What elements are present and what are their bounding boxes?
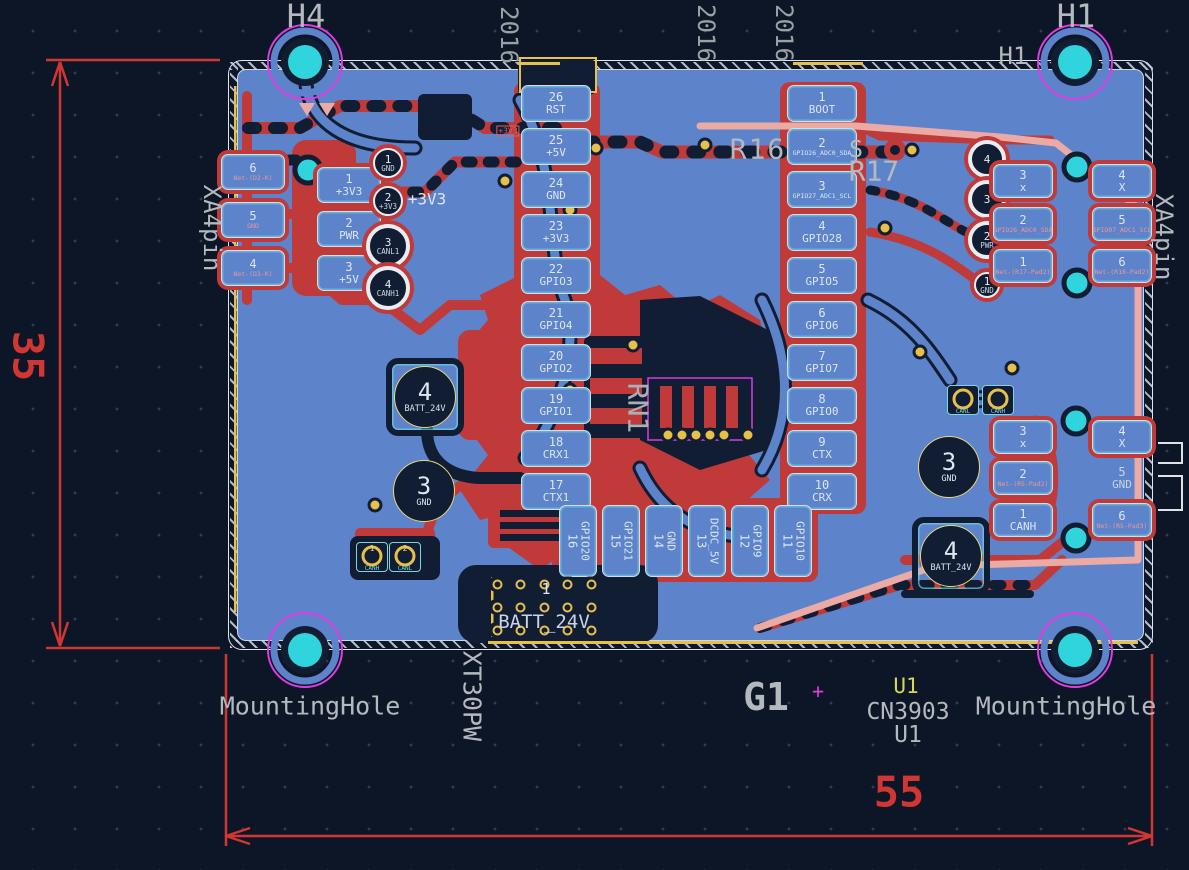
pin-pad-left-20[interactable]: 20GPIO2 xyxy=(521,344,591,381)
pad-net: GPIO26_ADC0_SDA xyxy=(994,227,1053,234)
ref-g1: G1 xyxy=(743,675,789,719)
silk-label-2016-c: 2016 xyxy=(770,4,798,62)
pin-pad-vertical-text: GND14 xyxy=(652,507,677,575)
br-conn-mid-pad-1[interactable]: 1CANH xyxy=(993,503,1053,537)
pad-net: CANH1 xyxy=(377,290,400,298)
pad-number: 3 xyxy=(984,194,991,205)
pin-name: GPIO0 xyxy=(805,406,838,418)
pin-pad-right-4[interactable]: 4GPIO28 xyxy=(787,214,857,251)
pad-number: 1 xyxy=(1019,508,1026,521)
pad-net: x xyxy=(1020,438,1027,450)
br-conn-outer-pad-6[interactable]: 6Net-(R5-Pad3) xyxy=(1092,503,1152,537)
pin-pad-vertical-text: GPIO1011 xyxy=(781,507,806,575)
pad-net: Net-(D2-K) xyxy=(233,175,272,182)
pad-net: GND xyxy=(381,165,395,173)
left-conn-th-pad-4[interactable]: 4CANH1 xyxy=(366,266,410,310)
pin-name: CRX1 xyxy=(543,449,570,461)
pad-number: 3 xyxy=(942,450,956,474)
br-conn-mid-pad-3[interactable]: 3x xyxy=(993,420,1053,454)
pin-name: GPIO20 xyxy=(579,521,591,561)
batt-conn-name: BATT_24V xyxy=(498,611,590,633)
can-pad-CANL[interactable]: 2CANL xyxy=(389,542,421,572)
edge-bracket xyxy=(1158,443,1182,510)
pad-net: Net-(R17-Pad2) xyxy=(996,269,1051,276)
pad-net: Net-(D3-K) xyxy=(233,271,272,278)
pin-number: 19 xyxy=(549,393,563,406)
big-pad-batt_24v[interactable]: 4BATT_24V xyxy=(920,525,982,587)
pad-net: GND xyxy=(247,223,259,230)
pin-name: +3V3 xyxy=(543,233,570,245)
pin-pad-bottom-12[interactable]: GPIO912 xyxy=(731,505,769,577)
right-conn-outer-pad-4[interactable]: 4X xyxy=(1092,164,1152,198)
pad-net: Net-(R5-Pad3) xyxy=(1097,523,1148,530)
pin-number: 8 xyxy=(818,393,825,406)
pin-pad-right-1[interactable]: 1BOOT xyxy=(787,85,857,122)
pin-name: GND xyxy=(665,531,677,551)
pad-number: 3 xyxy=(385,237,392,248)
pin-name: GPIO28 xyxy=(802,233,842,245)
pin-number: 2 xyxy=(818,137,825,150)
left-conn-th-pad-1[interactable]: 1GND xyxy=(373,148,403,178)
pin-pad-left-19[interactable]: 19GPIO1 xyxy=(521,387,591,424)
pin-number: 9 xyxy=(818,436,825,449)
pin-pad-vertical-text: GPIO2016 xyxy=(566,507,591,575)
pad-number: 1 xyxy=(984,276,991,287)
ref-rn1: RN1 xyxy=(622,383,655,434)
pin-number: 14 xyxy=(652,534,665,548)
pin-pad-right-9[interactable]: 9CTX xyxy=(787,430,857,467)
pin-name: GPIO7 xyxy=(805,363,838,375)
pin-name: GPIO10 xyxy=(794,521,806,561)
big-pad-gnd[interactable]: 3GND xyxy=(393,460,455,522)
pin-name: GPIO26_ADC0_SDA xyxy=(793,150,852,157)
left-conn-edge-pad-4[interactable]: 4Net-(D3-K) xyxy=(221,250,285,286)
big-pad-batt_24v[interactable]: 4BATT_24V xyxy=(394,366,456,428)
pad-number: 4 xyxy=(1118,169,1125,182)
pin-pad-left-18[interactable]: 18CRX1 xyxy=(521,430,591,467)
br-conn-mid-pad-2[interactable]: 2Net-(R5-Pad2) xyxy=(993,461,1053,495)
pin-number: 18 xyxy=(549,436,563,449)
pad-number: 3 xyxy=(1019,425,1026,438)
pin-name: RST xyxy=(546,104,566,116)
pad-number: 4 xyxy=(944,539,958,563)
right-conn-mid-pad-1[interactable]: 1Net-(R17-Pad2) xyxy=(993,249,1053,283)
pad-number: 1 xyxy=(345,173,352,186)
pad-net: CANL xyxy=(956,408,970,415)
br-conn-outer-pad-4[interactable]: 4X xyxy=(1092,420,1152,454)
pin-name: GPIO27_ADC1_SCL xyxy=(793,193,852,200)
batt-pad-hole xyxy=(490,577,505,592)
pad-number: 2 xyxy=(403,544,408,553)
pin-pad-left-22[interactable]: 22GPIO3 xyxy=(521,257,591,294)
pin-name: GPIO6 xyxy=(805,320,838,332)
pin-name: GPIO21 xyxy=(622,521,634,561)
connector-ref-xa4pin-right: XA4pin xyxy=(1150,194,1178,281)
pin-name: GPIO4 xyxy=(539,320,572,332)
silk-label-2016-b: 2016 xyxy=(692,4,720,62)
pad-net: Net-(R5-Pad2) xyxy=(998,481,1049,488)
net-label-3v3: +3V3 xyxy=(408,190,447,209)
pin-pad-right-2[interactable]: 2GPIO26_ADC0_SDA xyxy=(787,128,857,165)
pad-net: GND xyxy=(1112,479,1132,491)
pad-number: 1 xyxy=(385,154,392,165)
pin-pad-left-26[interactable]: 26RST xyxy=(521,85,591,122)
pin-pad-right-6[interactable]: 6GPIO6 xyxy=(787,301,857,338)
pad-net: X xyxy=(1119,438,1126,450)
pad-net: GND xyxy=(416,498,431,508)
mounting-hole-ref-h1-small: H1 xyxy=(999,42,1028,70)
left-conn-edge-pad-6[interactable]: 6Net-(D2-K) xyxy=(221,154,285,190)
pad-number: 2 xyxy=(984,231,991,242)
pin-number: 12 xyxy=(738,534,751,548)
pad-net: GND xyxy=(941,474,956,484)
pin-name: GPIO2 xyxy=(539,363,572,375)
mounting-hole-label-left: MountingHole xyxy=(220,692,401,721)
pad-net: X xyxy=(1119,182,1126,194)
big-pad-gnd[interactable]: 3GND xyxy=(918,436,980,498)
mounting-hole-label-right: MountingHole xyxy=(976,692,1157,721)
silk-label-2016-a: 2016 xyxy=(495,6,523,64)
pad-number: 2 xyxy=(385,192,392,203)
pad-number: 4 xyxy=(1118,425,1125,438)
pin-name: +5V xyxy=(546,147,566,159)
pin-pad-vertical-text: DCDC_5V13 xyxy=(695,507,720,575)
pin-pad-bottom-11[interactable]: GPIO1011 xyxy=(774,505,812,577)
pin-pad-right-5[interactable]: 5GPIO5 xyxy=(787,257,857,294)
pad-number: 4 xyxy=(984,154,991,165)
pin-number: 3 xyxy=(818,180,825,193)
pad-net: Net-(R18-Pad2) xyxy=(1095,269,1150,276)
pad-net: GND xyxy=(980,287,994,295)
batt-pad-hole xyxy=(584,577,599,592)
pin-name: GPIO1 xyxy=(539,406,572,418)
pad-net: CANL1 xyxy=(377,248,400,256)
net-label-3v3-small: +3V3 xyxy=(496,126,519,137)
pad-net: +3V3 xyxy=(336,186,363,198)
pad-hole xyxy=(988,388,1009,409)
pin-pad-bottom-15[interactable]: GPIO2115 xyxy=(602,505,640,577)
pin-pad-left-24[interactable]: 24GND xyxy=(521,171,591,208)
pad-hole xyxy=(953,388,974,409)
pad-number: 5 xyxy=(1118,466,1125,479)
can-pad-CANH[interactable]: CANH xyxy=(982,385,1014,415)
pin-number: 10 xyxy=(815,479,829,492)
pad-net: GPIO07_ADC1_SCL xyxy=(1093,227,1152,234)
pad-net: CANH xyxy=(365,565,379,572)
pin-number: 20 xyxy=(549,350,563,363)
mounting-hole-ref-h4: H4 xyxy=(287,0,326,35)
pad-number: 3 xyxy=(345,261,352,274)
pin-pad-left-23[interactable]: 23+3V3 xyxy=(521,214,591,251)
pin-pad-right-7[interactable]: 7GPIO7 xyxy=(787,344,857,381)
br-conn-outer-pad-5[interactable]: 5GND xyxy=(1092,461,1152,495)
mounting-hole-ref-h1: H1 xyxy=(1057,0,1096,35)
batt-pad-hole xyxy=(513,577,528,592)
pad-net: BATT_24V xyxy=(405,404,446,414)
pad-number: 4 xyxy=(418,380,432,404)
pin-number: 7 xyxy=(818,350,825,363)
pin-pad-left-21[interactable]: 21GPIO4 xyxy=(521,301,591,338)
pin-number: 17 xyxy=(549,479,563,492)
right-conn-outer-pad-5[interactable]: 5GPIO07_ADC1_SCL xyxy=(1092,207,1152,241)
pin-number: 11 xyxy=(781,534,794,548)
pin-name: CTX1 xyxy=(543,492,570,504)
ref-u1: U1 xyxy=(894,722,922,748)
anchor-cross: + xyxy=(812,679,824,703)
left-conn-edge-pad-5[interactable]: 5GND xyxy=(221,202,285,238)
pad-net: CANL xyxy=(398,565,412,572)
pad-net: CANH xyxy=(991,408,1005,415)
right-conn-mid-pad-3[interactable]: 3x xyxy=(993,164,1053,198)
pin-name: CRX xyxy=(812,492,832,504)
connector-ref-xa4pin-left: XA4pin xyxy=(198,185,226,272)
connector-ref-xt30pw: XT30PW xyxy=(458,651,487,741)
ref-r16: R16 xyxy=(730,133,787,166)
pad-number: 3 xyxy=(1019,169,1026,182)
pin-number: 6 xyxy=(818,307,825,320)
pin-name: BOOT xyxy=(809,104,836,116)
pad-net: PWR xyxy=(339,230,359,242)
pad-net: x xyxy=(1020,182,1027,194)
pin-pad-left-25[interactable]: 25+5V xyxy=(521,128,591,165)
ref-r17-s: S xyxy=(849,137,863,163)
pin-pad-vertical-text: GPIO912 xyxy=(738,507,763,575)
pin-pad-vertical-text: GPIO2115 xyxy=(609,507,634,575)
left-conn-th-pad-3[interactable]: 3CANL1 xyxy=(366,224,410,268)
left-conn-th-pad-2[interactable]: 2+3V3 xyxy=(373,186,403,216)
right-conn-mid-pad-2[interactable]: 2GPIO26_ADC0_SDA xyxy=(993,207,1053,241)
pin-name: GND xyxy=(546,190,566,202)
pin-pad-bottom-16[interactable]: GPIO2016 xyxy=(559,505,597,577)
pin-name: CTX xyxy=(812,449,832,461)
ref-u1-value: U1 xyxy=(893,674,918,698)
can-pad-CANL[interactable]: CANL xyxy=(947,385,979,415)
pin-name: DCDC_5V xyxy=(708,518,720,564)
can-pad-CANH[interactable]: 1CANH xyxy=(356,542,388,572)
batt-pad-hole xyxy=(560,577,575,592)
pad-net: CANH xyxy=(1010,521,1037,533)
pad-net: +3V3 xyxy=(379,203,397,211)
pin-name: GPIO3 xyxy=(539,276,572,288)
pin-pad-bottom-13[interactable]: DCDC_5V13 xyxy=(688,505,726,577)
pad-number: 2 xyxy=(345,217,352,230)
pin-pad-right-3[interactable]: 3GPIO27_ADC1_SCL xyxy=(787,171,857,208)
pcb-editor-canvas[interactable]: H4 H1 H1 2016 2016 2016 XA4pin XA4pin XT… xyxy=(0,0,1189,870)
pin-number: 16 xyxy=(566,534,579,548)
pad-number: 1 xyxy=(370,544,375,553)
pad-net: +5V xyxy=(339,274,359,286)
dimension-height-value: 35 xyxy=(4,331,53,382)
pin-number: 15 xyxy=(609,534,622,548)
pin-number: 21 xyxy=(549,307,563,320)
batt-conn-pin1: 1 xyxy=(541,580,550,598)
left-conn-mid-pad-1[interactable]: 1+3V3 xyxy=(317,167,381,203)
pad-number: 3 xyxy=(417,474,431,498)
pin-name: GPIO9 xyxy=(751,524,763,557)
pin-number: 13 xyxy=(695,534,708,548)
right-conn-outer-pad-6[interactable]: 6Net-(R18-Pad2) xyxy=(1092,249,1152,283)
pad-net: BATT_24V xyxy=(931,563,972,573)
pad-number: 4 xyxy=(385,279,392,290)
pad-net: PWR xyxy=(980,242,994,250)
pin-pad-bottom-14[interactable]: GND14 xyxy=(645,505,683,577)
pin-pad-right-8[interactable]: 8GPIO0 xyxy=(787,387,857,424)
pin-name: GPIO5 xyxy=(805,276,838,288)
dimension-width-value: 55 xyxy=(874,768,925,817)
